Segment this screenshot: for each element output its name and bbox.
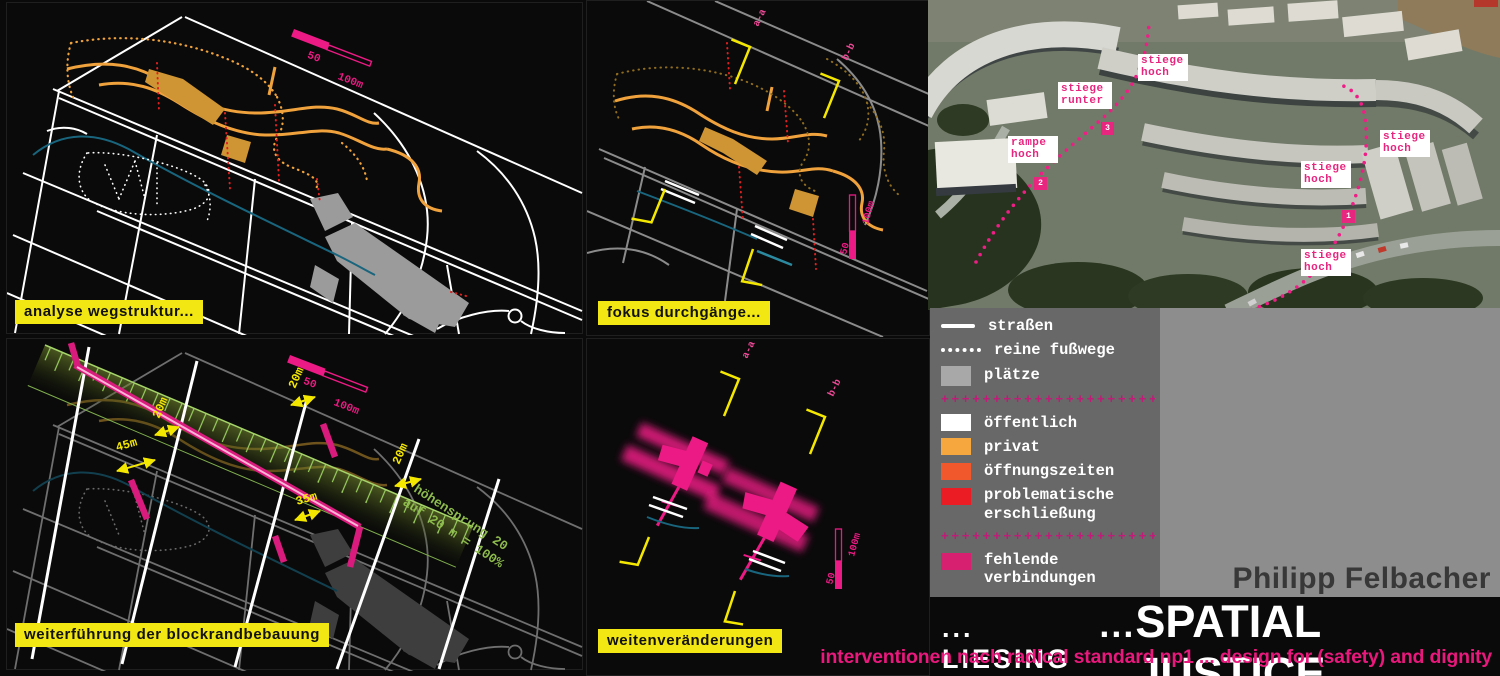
aerial-marker-3: 3 — [1101, 122, 1114, 135]
panel-label-fokus: fokus durchgänge... — [598, 301, 770, 325]
panel-label-analyse: analyse wegstruktur... — [15, 300, 203, 324]
poster: 50 100m analyse wegstruktur... — [0, 0, 1500, 676]
svg-text:100m: 100m — [847, 532, 864, 558]
subtitle: interventionen nach radical standard np1… — [820, 646, 1492, 669]
scale-bar-vertical: 50 100m — [825, 529, 864, 589]
panel-weiten: a-a b-b 50 100m weitenveränderungen — [586, 338, 930, 676]
legend-label: privat — [984, 438, 1040, 456]
creek-bright — [757, 251, 792, 265]
fokus-map-graphic: a-a b-b 50 100m — [587, 1, 931, 337]
aerial-label-stiege-hoch-4: stiege hoch — [1301, 249, 1351, 276]
aerial-label-stiege-hoch-2: stiege hoch — [1380, 130, 1430, 157]
legend-item-fusswege: reine fußwege — [941, 341, 1160, 359]
public-swatch — [941, 414, 971, 431]
section-label-a: a-a — [741, 340, 759, 361]
legend-item-plaetze: plätze — [941, 366, 1160, 386]
scale-bar: 50 100m — [281, 29, 373, 92]
aerial-marker-2: 2 — [1034, 177, 1047, 190]
svg-text:100m: 100m — [861, 200, 878, 226]
legend-label: problematische erschließung — [984, 486, 1134, 523]
panel-label-blockrand: weiterführung der blockrandbebauung — [15, 623, 329, 647]
aerial-marker-1: 1 — [1342, 210, 1355, 223]
aerial-label-stiege-runter: stiege runter — [1058, 82, 1112, 109]
aerial-label-rampe-hoch: rampe hoch — [1008, 136, 1058, 163]
weiten-map-graphic: a-a b-b 50 100m — [587, 339, 931, 676]
author-name: Philipp Felbacher — [1232, 562, 1491, 596]
legend-label: reine fußwege — [994, 341, 1115, 359]
svg-text:50: 50 — [305, 50, 322, 66]
aerial-label-stiege-hoch-1: stiege hoch — [1138, 54, 1188, 81]
title-dots: ... — [1099, 604, 1135, 646]
legend-separator: ++++++++++++++++++++++++ — [941, 392, 1155, 407]
legend-item-strassen: straßen — [941, 317, 1160, 335]
panel-fokus: a-a b-b 50 100m fokus durchgänge... — [586, 0, 930, 336]
panel-analyse: 50 100m analyse wegstruktur... — [6, 2, 583, 334]
problematic-swatch — [941, 488, 971, 505]
blockrand-map-graphic: 20m 20m 45m 35m 20m höhensprung 20 auf 2… — [7, 339, 584, 671]
panel-blockrand: 20m 20m 45m 35m 20m höhensprung 20 auf 2… — [6, 338, 583, 670]
missing-connections-swatch — [941, 553, 971, 570]
plaza-swatch — [941, 366, 971, 386]
legend-label: plätze — [984, 366, 1040, 384]
section-label-b: b-b — [826, 377, 845, 398]
analyse-map-graphic: 50 100m — [7, 3, 584, 335]
opening-hours-swatch — [941, 463, 971, 480]
legend-label: straßen — [988, 317, 1053, 335]
aerial-label-stiege-hoch-3: stiege hoch — [1301, 161, 1351, 188]
legend-label: öffentlich — [984, 414, 1077, 432]
legend-item-fehlend: fehlende verbindungen — [941, 551, 1160, 588]
legend: straßen reine fußwege plätze +++++++++++… — [930, 308, 1160, 597]
private-swatch — [941, 438, 971, 455]
legend-label: fehlende verbindungen — [984, 551, 1134, 588]
footpath-dots-swatch — [941, 348, 981, 352]
section-label-b: b-b — [840, 41, 859, 62]
legend-item-privat: privat — [941, 438, 1160, 456]
legend-item-oeffnungszeiten: öffnungszeiten — [941, 462, 1160, 480]
legend-label: öffnungszeiten — [984, 462, 1114, 480]
legend-item-problematisch: problematische erschließung — [941, 486, 1160, 523]
street-line-swatch — [941, 324, 975, 328]
svg-text:100m: 100m — [332, 397, 361, 418]
section-label-a: a-a — [752, 8, 770, 29]
svg-text:50: 50 — [301, 376, 318, 392]
aerial-photo: stiege hoch stiege runter rampe hoch sti… — [928, 0, 1500, 310]
credit-box: Philipp Felbacher — [1160, 308, 1500, 597]
legend-separator: ++++++++++++++++++++++++ — [941, 529, 1155, 544]
title-bar: ... LIESING ... SPATIAL JUSTICE — [930, 596, 1496, 646]
dim-45m: 45m — [114, 435, 139, 454]
panel-label-weiten: weitenveränderungen — [598, 629, 782, 653]
plaza-shapes — [310, 193, 469, 333]
svg-text:100m: 100m — [336, 71, 365, 92]
intervention-shape-2 — [683, 457, 825, 598]
legend-item-oeffentlich: öffentlich — [941, 414, 1160, 432]
